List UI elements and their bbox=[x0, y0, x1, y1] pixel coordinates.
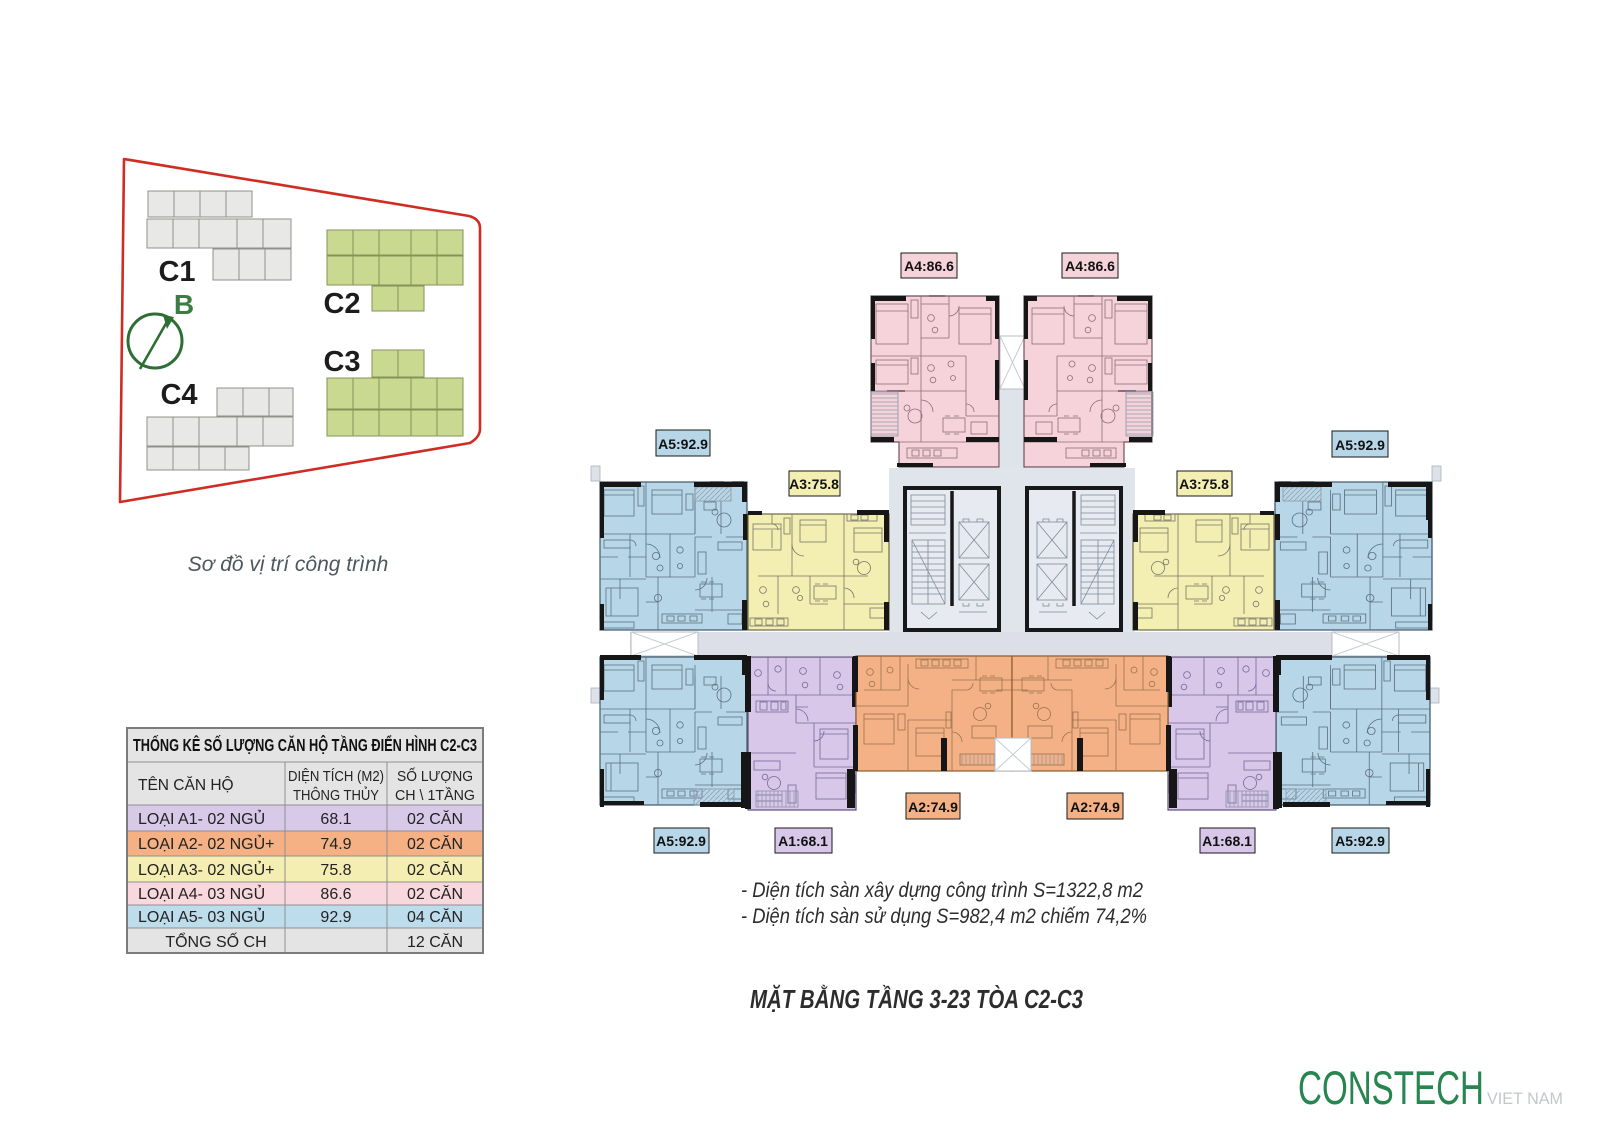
svg-text:A5:92.9: A5:92.9 bbox=[1335, 437, 1385, 453]
svg-text:THÔNG THỦY: THÔNG THỦY bbox=[293, 786, 379, 804]
svg-text:A1:68.1: A1:68.1 bbox=[1202, 833, 1252, 849]
svg-text:LOẠI A1- 02 NGỦ: LOẠI A1- 02 NGỦ bbox=[138, 809, 265, 828]
svg-text:TÊN CĂN HỘ: TÊN CĂN HỘ bbox=[138, 777, 234, 794]
svg-text:02 CĂN: 02 CĂN bbox=[407, 860, 463, 879]
svg-text:LOẠI A5- 03 NGỦ: LOẠI A5- 03 NGỦ bbox=[138, 907, 265, 926]
svg-text:LOẠI A2- 02 NGỦ+: LOẠI A2- 02 NGỦ+ bbox=[138, 834, 275, 853]
svg-text:A5:92.9: A5:92.9 bbox=[656, 833, 706, 849]
svg-text:68.1: 68.1 bbox=[320, 811, 351, 828]
svg-text:SỐ LƯỢNG: SỐ LƯỢNG bbox=[397, 767, 473, 785]
svg-text:74.9: 74.9 bbox=[320, 836, 351, 853]
svg-text:C2: C2 bbox=[323, 288, 360, 320]
svg-text:MẶT BẰNG TẦNG 3-23 TÒA C2-C3: MẶT BẰNG TẦNG 3-23 TÒA C2-C3 bbox=[750, 984, 1083, 1014]
svg-text:Sơ đồ vị trí công trình: Sơ đồ vị trí công trình bbox=[188, 553, 389, 576]
svg-text:VIET NAM: VIET NAM bbox=[1487, 1089, 1563, 1108]
svg-text:04 CĂN: 04 CĂN bbox=[407, 907, 463, 926]
svg-text:A2:74.9: A2:74.9 bbox=[908, 799, 958, 815]
svg-text:92.9: 92.9 bbox=[320, 909, 351, 926]
svg-text:- Diện tích sàn xây dựng công: - Diện tích sàn xây dựng công trình S=13… bbox=[741, 879, 1143, 902]
svg-text:A4:86.6: A4:86.6 bbox=[904, 258, 954, 274]
svg-text:TỔNG SỐ CH: TỔNG SỐ CH bbox=[165, 931, 266, 951]
svg-text:THỐNG KÊ SỐ LƯỢNG CĂN HỘ TẦNG: THỐNG KÊ SỐ LƯỢNG CĂN HỘ TẦNG ĐIỂN HÌNH … bbox=[133, 734, 477, 755]
svg-text:CH \ 1TẦNG: CH \ 1TẦNG bbox=[395, 787, 475, 804]
svg-text:LOẠI A3- 02 NGỦ+: LOẠI A3- 02 NGỦ+ bbox=[138, 860, 275, 879]
svg-text:86.6: 86.6 bbox=[320, 886, 351, 903]
svg-text:A1:68.1: A1:68.1 bbox=[778, 833, 828, 849]
svg-text:LOẠI A4- 03 NGỦ: LOẠI A4- 03 NGỦ bbox=[138, 884, 265, 903]
svg-text:A3:75.8: A3:75.8 bbox=[1179, 476, 1229, 492]
svg-text:C1: C1 bbox=[158, 256, 195, 288]
svg-text:02 CĂN: 02 CĂN bbox=[407, 884, 463, 903]
svg-text:C4: C4 bbox=[160, 379, 197, 411]
svg-text:02 CĂN: 02 CĂN bbox=[407, 834, 463, 853]
svg-text:- Diện tích sàn sử dụng S=982,: - Diện tích sàn sử dụng S=982,4 m2 chiếm… bbox=[741, 905, 1147, 928]
svg-text:12 CĂN: 12 CĂN bbox=[407, 932, 463, 951]
svg-text:A2:74.9: A2:74.9 bbox=[1070, 799, 1120, 815]
svg-text:B: B bbox=[174, 289, 194, 320]
svg-text:A4:86.6: A4:86.6 bbox=[1065, 258, 1115, 274]
svg-text:DIỆN TÍCH (M2): DIỆN TÍCH (M2) bbox=[288, 768, 384, 785]
svg-text:02 CĂN: 02 CĂN bbox=[407, 809, 463, 828]
svg-text:A5:92.9: A5:92.9 bbox=[1335, 833, 1385, 849]
svg-text:A3:75.8: A3:75.8 bbox=[789, 476, 839, 492]
svg-text:A5:92.9: A5:92.9 bbox=[658, 436, 708, 452]
svg-text:75.8: 75.8 bbox=[320, 862, 351, 879]
svg-text:C3: C3 bbox=[323, 346, 360, 378]
svg-text:CONSTECH: CONSTECH bbox=[1298, 1061, 1484, 1114]
